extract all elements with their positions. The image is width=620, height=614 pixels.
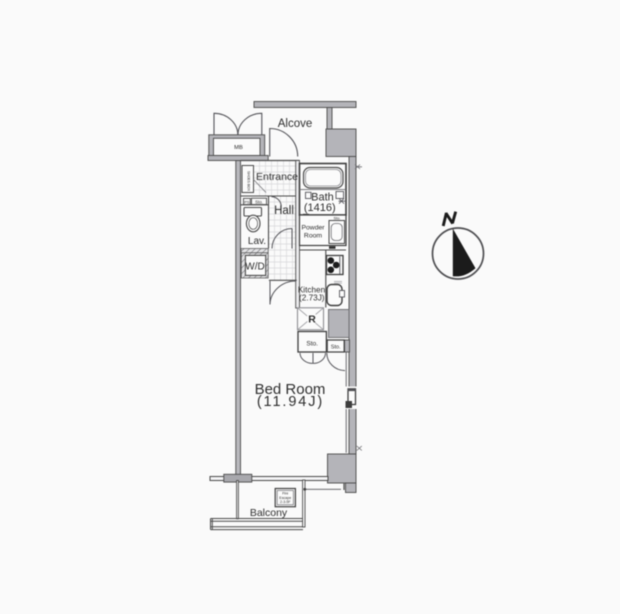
svg-text:Powder: Powder [301,225,325,232]
svg-text:Sto.: Sto. [255,199,263,204]
svg-text:PS: PS [244,199,250,204]
svg-text:Sto.: Sto. [331,345,341,351]
svg-text:Lav.: Lav. [248,236,266,247]
svg-text:Balcony: Balcony [250,507,288,519]
svg-text:Sto.: Sto. [333,216,340,221]
svg-text:(11.94J): (11.94J) [257,394,324,410]
svg-text:W/D: W/D [245,261,264,272]
svg-text:2-3-5F: 2-3-5F [280,500,291,504]
svg-text:Alcove: Alcove [278,118,313,130]
svg-text:Room: Room [304,233,322,240]
svg-text:(1416): (1416) [304,202,336,214]
svg-text:(2.73J): (2.73J) [299,294,325,303]
svg-text:SHOES BOX: SHOES BOX [247,171,251,192]
svg-text:Sto.: Sto. [306,341,318,348]
svg-text:MB: MB [234,145,243,151]
svg-text:Entrance: Entrance [256,171,298,183]
svg-text:Escape: Escape [279,496,291,500]
svg-text:R: R [308,313,316,325]
svg-text:Hall: Hall [274,205,294,217]
